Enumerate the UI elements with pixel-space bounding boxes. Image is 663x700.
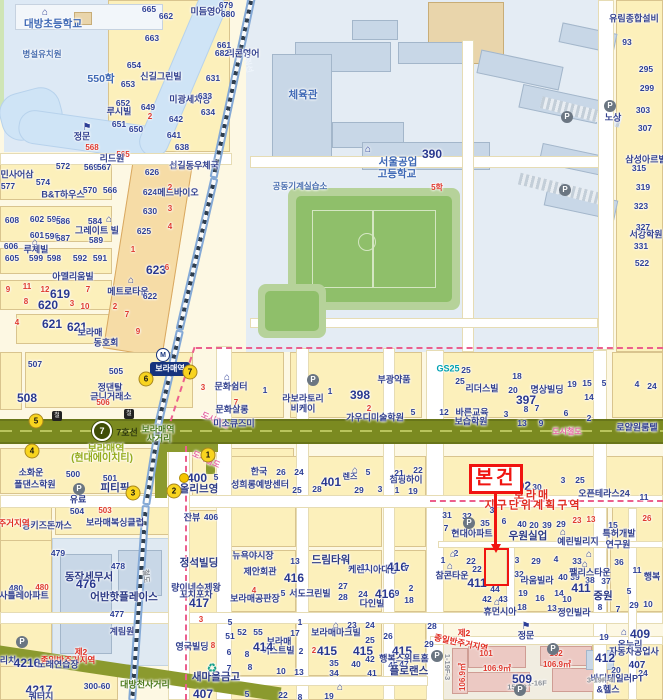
building-icon: ⌂ bbox=[171, 161, 177, 171]
building-icon: ⌂ bbox=[128, 276, 134, 286]
place-name: 성희롱예방센터 bbox=[231, 481, 289, 490]
parcel-number: 15 bbox=[582, 379, 591, 388]
intersection-name: 사거리 bbox=[147, 435, 172, 444]
parcel-number: 654 bbox=[127, 61, 141, 70]
place-name: 문화살롱 bbox=[215, 406, 248, 415]
parcel-number: 598 bbox=[47, 254, 61, 263]
parcel-number: 42 bbox=[365, 655, 374, 664]
parcel-number: 6 bbox=[227, 648, 232, 657]
parcel-number: 6 bbox=[502, 517, 507, 526]
shape-flc bbox=[358, 233, 376, 251]
parcel-number: 19 bbox=[324, 692, 333, 700]
parcel-number: 22 bbox=[413, 466, 422, 475]
parcel-number: 5 bbox=[228, 618, 233, 627]
line7-badge-icon: 7 bbox=[92, 421, 112, 441]
building-icon: ⌂ bbox=[365, 145, 371, 155]
place-name: 미소큐즈미 bbox=[213, 420, 254, 429]
parcel-number: 2 bbox=[168, 184, 172, 192]
parcel-number: 24 bbox=[647, 382, 656, 391]
place-name: 정석빌딩 bbox=[180, 558, 219, 569]
parcel-number: 4 bbox=[168, 223, 172, 231]
place-name: 잔뷰 bbox=[184, 514, 201, 523]
parcel-number: 34 bbox=[329, 669, 338, 678]
parcel-number: 507 bbox=[28, 360, 42, 369]
parcel-number: 29 bbox=[354, 486, 363, 495]
parcel-number: 3 bbox=[515, 556, 520, 565]
parcel-number: 7 bbox=[86, 286, 90, 294]
parcel-number: 40 bbox=[517, 520, 526, 529]
parcel-number: 1 bbox=[298, 618, 303, 627]
parking-icon: P bbox=[73, 483, 85, 495]
place-name: 올리브영 bbox=[180, 484, 219, 495]
place-name: 어반핫플레이스 bbox=[90, 592, 158, 603]
parcel-number: 36 bbox=[614, 558, 623, 567]
parcel-number: 634 bbox=[201, 108, 215, 117]
parcel-number: 20 bbox=[529, 521, 538, 530]
parcel-number: 14 bbox=[584, 393, 593, 402]
parcel-number: 606 bbox=[4, 242, 18, 251]
gate-flag-icon: ⚑ bbox=[522, 622, 531, 632]
place-name: 고등학교 bbox=[378, 169, 417, 180]
subway-exit-number: 4 bbox=[25, 444, 40, 459]
parcel-number: 39 bbox=[542, 521, 551, 530]
parcel-number: 5 bbox=[281, 589, 286, 598]
parcel-number: 319 bbox=[636, 183, 650, 192]
parcel-number: 503 bbox=[98, 507, 111, 515]
place-name: 대방초등학교 bbox=[24, 19, 82, 30]
parcel-number: 25 bbox=[575, 476, 584, 485]
shape-cbld bbox=[352, 20, 398, 40]
place-name: 한국 bbox=[251, 468, 268, 477]
parcel-number: 13 bbox=[517, 419, 526, 428]
parcel-number: 2 bbox=[299, 647, 304, 656]
parcel-number: 416 bbox=[375, 588, 395, 600]
building-icon: ⌂ bbox=[106, 215, 112, 225]
parcel-number: 508 bbox=[17, 392, 37, 404]
parcel-number: 19 bbox=[408, 487, 417, 496]
parcel-number: 41 bbox=[367, 669, 376, 678]
parcel-number: 638 bbox=[175, 143, 189, 152]
subway-exit-number: 2 bbox=[167, 484, 182, 499]
place-name: 휴먼시아 bbox=[483, 608, 516, 617]
parcel-number: 101 bbox=[479, 650, 492, 658]
parcel-number: 641 bbox=[167, 131, 181, 140]
parcel-number: 592 bbox=[73, 254, 87, 263]
shape-hlrect bbox=[484, 548, 509, 586]
place-name: 서울공업 bbox=[379, 157, 418, 168]
parcel-number: 621 bbox=[42, 318, 62, 330]
place-name: B&T하우스 bbox=[41, 191, 84, 200]
parcel-number: 1 bbox=[395, 486, 400, 495]
parcel-number: 28 bbox=[427, 622, 436, 631]
place-name: 부광약품 bbox=[377, 376, 410, 385]
parcel-number: 649 bbox=[141, 103, 155, 112]
place-name: 드림타워 bbox=[312, 555, 351, 566]
place-name: 플로랜스 bbox=[390, 666, 429, 677]
parcel-number: 605 bbox=[5, 254, 19, 263]
place-name: 민사어삼 bbox=[0, 171, 33, 180]
parcel-number: 16 bbox=[535, 594, 544, 603]
place-name: 노래연습장 bbox=[37, 661, 78, 670]
parcel-number: 587 bbox=[56, 234, 70, 243]
place-name: 아멜리움빌 bbox=[52, 273, 93, 282]
parcel-number: 630 bbox=[143, 207, 157, 216]
poi-dot-icon bbox=[179, 473, 189, 483]
parcel-number: 5 bbox=[366, 468, 371, 477]
line7-label: 7호선 bbox=[116, 429, 138, 438]
parcel-number: 18 bbox=[404, 596, 413, 605]
parcel-number: 295 bbox=[639, 65, 653, 74]
parcel-number: 307 bbox=[638, 124, 652, 133]
parcel-number: 5학 bbox=[431, 184, 443, 192]
parcel-number: 602 bbox=[30, 215, 44, 224]
parcel-number: 1 bbox=[131, 246, 135, 254]
place-name: 현대아파트 bbox=[451, 530, 492, 539]
parcel-number: 11 bbox=[361, 563, 370, 572]
station-name: 보라매역 bbox=[155, 365, 184, 373]
parcel-number: 7 bbox=[405, 564, 410, 573]
place-name: 보라매 bbox=[78, 329, 103, 338]
parcel-number: 626 bbox=[145, 168, 159, 177]
place-name: 유료 bbox=[70, 496, 87, 505]
shape-dash bbox=[196, 347, 663, 349]
parcel-number: 3 bbox=[504, 410, 509, 419]
shape-tri bbox=[491, 544, 501, 553]
parcel-number: 663 bbox=[145, 34, 159, 43]
parcel-number: 5 bbox=[214, 473, 219, 482]
place-name: 비케이 bbox=[291, 405, 316, 414]
zoning-text: 주거지역 bbox=[0, 519, 30, 528]
parcel-number: 7 bbox=[125, 311, 129, 319]
parcel-number: 409 bbox=[630, 628, 650, 640]
parcel-number: 303 bbox=[636, 106, 650, 115]
place-name: 리더스빌 bbox=[465, 385, 498, 394]
parcel-number: 506 bbox=[96, 399, 109, 407]
parcel-number: 19 bbox=[599, 633, 608, 642]
parcel-number: 416 bbox=[284, 572, 304, 584]
parcel-number: 476 bbox=[76, 578, 96, 590]
parcel-number: 572 bbox=[56, 162, 70, 171]
parcel-number: 106.9㎡ bbox=[543, 661, 571, 669]
place-name: 행복 bbox=[644, 573, 661, 582]
parcel-number: 9 bbox=[136, 328, 140, 336]
parcel-number: 2 bbox=[587, 414, 592, 423]
place-name: &헬스 bbox=[596, 686, 619, 695]
place-name: 리드원 bbox=[100, 155, 125, 164]
parcel-number: 27 bbox=[338, 582, 347, 591]
parcel-number: 26 bbox=[276, 468, 285, 477]
parcel-number: 29 bbox=[531, 557, 540, 566]
place-name: 중원 bbox=[593, 591, 612, 602]
parcel-number: 22 bbox=[278, 691, 287, 700]
parking-icon: P bbox=[431, 650, 443, 662]
place-name: 예린빌리지 bbox=[557, 538, 598, 547]
parcel-number: 10 bbox=[276, 667, 285, 676]
shape-st bbox=[598, 0, 614, 350]
parcel-number: 401 bbox=[321, 476, 341, 488]
parcel-number: 651 bbox=[112, 120, 126, 129]
parcel-number: 22 bbox=[472, 565, 481, 574]
shape-cbld bbox=[60, 554, 112, 654]
parcel-number: 8 bbox=[598, 603, 603, 612]
parcel-number: 26 bbox=[643, 515, 652, 523]
parcel-number: 331 bbox=[634, 242, 648, 251]
parcel-number: 570 bbox=[83, 186, 97, 195]
parcel-number: 412 bbox=[595, 652, 615, 664]
building-icon: ⌂ bbox=[582, 560, 588, 570]
parcel-number: 622 bbox=[143, 292, 157, 301]
parcel-number: 631 bbox=[206, 74, 220, 83]
parcel-number: 5 bbox=[245, 690, 250, 699]
parcel-number: 23 bbox=[573, 517, 582, 525]
parcel-number: 650 bbox=[129, 125, 143, 134]
parcel-number: 9 bbox=[6, 286, 10, 294]
parcel-number: 584 bbox=[88, 217, 102, 226]
parcel-number: 620 bbox=[38, 299, 58, 311]
parcel-number: 509 bbox=[512, 673, 532, 685]
parking-icon: P bbox=[16, 636, 28, 648]
parking-icon: P bbox=[561, 111, 573, 123]
place-name: 550학 bbox=[87, 74, 114, 85]
parcel-number: 4 bbox=[554, 555, 559, 564]
parcel-number: 608 bbox=[5, 216, 19, 225]
gate-flag-icon: ⚑ bbox=[83, 123, 92, 133]
place-name: 정문 bbox=[74, 133, 91, 142]
place-name: 보습학원 bbox=[454, 418, 487, 427]
building-icon: ⌂ bbox=[337, 683, 343, 693]
place-name: 가우디미술학원 bbox=[346, 414, 404, 423]
parcel-number: 28 bbox=[338, 593, 347, 602]
parcel-number: 586 bbox=[56, 217, 70, 226]
subject-marker-label: 본건 bbox=[476, 469, 517, 488]
parcel-number: 11 bbox=[640, 493, 649, 502]
parcel-number: 19 bbox=[567, 380, 576, 389]
parcel-number: 415 bbox=[317, 645, 337, 657]
parcel-number: 25 bbox=[365, 636, 374, 645]
place-name: 사틀레아파트 bbox=[0, 592, 49, 601]
parcel-number: 1 bbox=[263, 386, 268, 395]
parcel-number: 10 bbox=[562, 595, 571, 604]
map-canvas[interactable]: 대방초등학교병설유치원550학체육관서울공업고등학교공동기계실습소3905학노상… bbox=[0, 0, 663, 700]
parcel-number: 3 bbox=[168, 205, 172, 213]
place-name: 소화운 bbox=[19, 469, 44, 478]
parking-icon: P bbox=[307, 374, 319, 386]
parcel-number: 2 bbox=[409, 584, 414, 593]
parcel-number: 2 bbox=[148, 113, 152, 121]
parcel-number: 7 bbox=[616, 605, 621, 614]
place-name: 우원실업 bbox=[509, 531, 548, 542]
parcel-number: 8 bbox=[245, 650, 250, 659]
subway-station-icon: M bbox=[156, 348, 170, 362]
shape-fln bbox=[312, 210, 436, 288]
parcel-number: 566 bbox=[103, 186, 117, 195]
railroad-crossing-icon: 철 bbox=[124, 409, 134, 419]
place-name: 동호회 bbox=[94, 339, 119, 348]
parcel-number: 5 bbox=[602, 379, 607, 388]
parcel-number: 25 bbox=[461, 366, 470, 375]
shape-blk bbox=[300, 503, 382, 547]
parcel-number: 19 bbox=[518, 589, 527, 598]
parcel-number: 12 bbox=[41, 286, 50, 294]
parking-icon: P bbox=[559, 184, 571, 196]
parcel-number: 3 bbox=[201, 384, 205, 392]
parcel-number: 26 bbox=[383, 632, 392, 641]
place-name: 영국빌딩 bbox=[175, 643, 208, 652]
place-name: 오픈테라스24 bbox=[578, 490, 629, 499]
parcel-number: 522 bbox=[635, 259, 649, 268]
parcel-number: 4 bbox=[635, 380, 640, 389]
building-icon: ⌂ bbox=[450, 550, 456, 560]
zoning-text: 지구단위계획구역 bbox=[485, 501, 582, 512]
parking-icon: P bbox=[604, 100, 616, 112]
intersection-name: 대방천사거리 bbox=[120, 681, 170, 690]
place-name: 로얄원룸텔 bbox=[616, 424, 657, 433]
parcel-number: 52 bbox=[237, 628, 246, 637]
parcel-number: 624 bbox=[143, 188, 157, 197]
parcel-number: 40 bbox=[351, 660, 360, 669]
shape-st bbox=[593, 350, 607, 700]
building-icon: ⌂ bbox=[352, 466, 358, 476]
place-name: 라보라토리 bbox=[282, 395, 323, 404]
place-name: 병설유치원 bbox=[22, 50, 61, 59]
parcel-number: 11 bbox=[23, 283, 31, 291]
parcel-number: 35 bbox=[480, 519, 489, 528]
parcel-number: 106.9㎡ bbox=[483, 665, 511, 673]
parcel-number: 55 bbox=[253, 628, 262, 637]
parcel-number: 398 bbox=[350, 389, 370, 401]
parcel-number: 25 bbox=[292, 486, 301, 495]
store-name: GS25 bbox=[436, 365, 459, 374]
parcel-number: 417 bbox=[189, 597, 209, 609]
building-icon: ⌂ bbox=[224, 373, 230, 383]
subway-exit-number: 5 bbox=[29, 414, 44, 429]
building-icon: ⌂ bbox=[333, 621, 339, 631]
parcel-number: 18 bbox=[512, 372, 521, 381]
place-name: 연구원 bbox=[606, 541, 631, 550]
building-icon: ⌂ bbox=[621, 628, 627, 638]
parcel-number: 13 bbox=[290, 557, 299, 566]
parcel-number: 662 bbox=[159, 12, 173, 21]
bank-icon: ♻ bbox=[207, 662, 218, 674]
parcel-number: 642 bbox=[169, 115, 183, 124]
parcel-number: 680 bbox=[221, 10, 235, 19]
parcel-number: 500 bbox=[66, 470, 80, 479]
parcel-number: 315 bbox=[632, 164, 646, 173]
place-name: 정문 bbox=[518, 632, 535, 641]
parcel-number: 44 bbox=[490, 585, 499, 594]
parcel-number: 2 bbox=[312, 647, 316, 655]
parcel-number: 665 bbox=[142, 5, 156, 14]
subway-exit-number: 6 bbox=[139, 372, 154, 387]
subway-exit-number: 1 bbox=[201, 448, 216, 463]
place-name: 체육관 bbox=[289, 90, 318, 101]
parcel-number: 25 bbox=[455, 377, 464, 386]
place-name: 루시빌 bbox=[107, 108, 132, 117]
parcel-number: 1 bbox=[441, 556, 446, 565]
place-name: 참콘타운 bbox=[435, 572, 468, 581]
parcel-number: 300-60 bbox=[84, 682, 110, 691]
parcel-number: 589 bbox=[89, 236, 103, 245]
parcel-number: 8 bbox=[298, 693, 303, 700]
place-name: 보라매복싱클럽 bbox=[86, 519, 144, 528]
parcel-number: 13 bbox=[587, 516, 596, 524]
parcel-number: 568 bbox=[85, 144, 98, 152]
shape-blk bbox=[616, 0, 663, 352]
parcel-number: 591 bbox=[93, 254, 107, 263]
place-name: 문화쉼터 bbox=[214, 383, 247, 392]
parcel-number: 37 bbox=[601, 577, 610, 586]
place-name: 신길그린빌 bbox=[140, 73, 181, 82]
parcel-number: 3 bbox=[561, 476, 566, 485]
parcel-number: 299 bbox=[640, 84, 654, 93]
parking-icon: P bbox=[514, 684, 526, 696]
parcel-number: 106.9㎡ bbox=[459, 663, 467, 691]
place-name: 라움빌라 bbox=[520, 577, 553, 586]
parcel-number: 323 bbox=[634, 202, 648, 211]
parcel-number: 479 bbox=[51, 549, 65, 558]
parcel-number: 11 bbox=[633, 566, 642, 575]
station-area-name: (현대에이치티) bbox=[71, 454, 133, 464]
subway-exit-number: 3 bbox=[126, 486, 141, 501]
place-name: 서도크린빌 bbox=[289, 590, 330, 599]
parcel-number: 13 bbox=[294, 668, 303, 677]
parcel-number: 31 bbox=[442, 511, 451, 520]
shape-fld bbox=[265, 291, 319, 331]
parcel-number: 623 bbox=[146, 264, 166, 276]
parcel-number: 13 bbox=[547, 604, 556, 613]
parcel-number: 5 bbox=[411, 408, 416, 417]
parcel-number: 414 bbox=[253, 641, 273, 653]
parcel-number: 2 bbox=[113, 303, 117, 311]
place-name: 공동기계실습소 bbox=[273, 182, 328, 191]
parcel-number: 6 bbox=[165, 264, 169, 272]
parcel-number: 42 bbox=[482, 595, 491, 604]
parcel-number: 8 bbox=[24, 298, 28, 306]
parcel-number: 407 bbox=[193, 688, 213, 700]
parcel-number: 40 bbox=[558, 573, 567, 582]
shape-blk bbox=[222, 503, 296, 547]
parcel-number: 411 bbox=[571, 582, 590, 594]
place-name: 유림종합설비 bbox=[609, 15, 659, 24]
parcel-number: 599 bbox=[29, 254, 43, 263]
rail-line-label: 도시철도 bbox=[552, 428, 581, 436]
parcel-number: 51 bbox=[225, 632, 234, 641]
parcel-number: 633 bbox=[198, 92, 212, 101]
place-name: 특허개발 bbox=[602, 530, 635, 539]
parcel-number: 8 bbox=[524, 405, 529, 414]
parcel-number: 9 bbox=[395, 589, 400, 598]
place-name: 정인빌라 bbox=[557, 609, 590, 618]
parcel-number: 4 bbox=[15, 319, 19, 327]
parcel-number: 6 bbox=[564, 409, 569, 418]
parcel-number: 3 bbox=[70, 300, 74, 308]
parcel-number: 23 bbox=[347, 621, 356, 630]
place-name: 제안회관 bbox=[243, 568, 276, 577]
parcel-number: 406 bbox=[204, 513, 218, 522]
parcel-number: 8 bbox=[211, 642, 215, 650]
parcel-number: 577 bbox=[1, 182, 15, 191]
annotation: 1-19F-3 bbox=[443, 654, 451, 680]
parcel-number: 29 bbox=[629, 601, 638, 610]
place-name: 노상 bbox=[605, 114, 622, 123]
parcel-number: 7 bbox=[444, 524, 449, 533]
parcel-number: 477 bbox=[110, 610, 124, 619]
parcel-number: 5 bbox=[627, 587, 632, 596]
parcel-number: 625 bbox=[137, 227, 151, 236]
parking-icon: P bbox=[547, 643, 559, 655]
place-name: 뉴욕야시장 bbox=[232, 552, 273, 561]
shape-cbld bbox=[272, 54, 332, 164]
